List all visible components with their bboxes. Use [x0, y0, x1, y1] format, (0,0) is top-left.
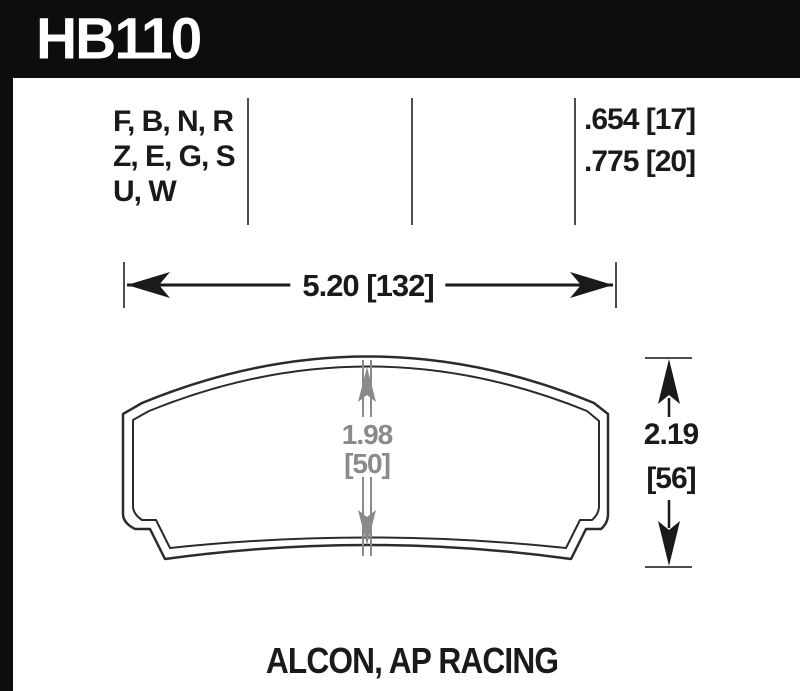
- dimension-drawing: [0, 0, 800, 691]
- brake-pad-spec-diagram: HB110 F, B, N, R Z, E, G, S U, W .654 [1…: [0, 0, 800, 691]
- column-divider-rules: [248, 98, 575, 225]
- friction-height-dimension-label: 1.98 [50]: [342, 420, 393, 478]
- applications-label: ALCON, AP RACING: [266, 640, 558, 682]
- overall-height-bracket: [56]: [644, 457, 698, 501]
- friction-height-value: 1.98: [342, 420, 393, 449]
- overall-height-value: 2.19: [644, 413, 698, 457]
- friction-height-bracket: [50]: [342, 449, 393, 478]
- width-dimension-label: 5.20 [132]: [290, 268, 445, 304]
- overall-height-dimension-label: 2.19 [56]: [644, 413, 698, 501]
- height-arrowhead-up: [658, 359, 680, 404]
